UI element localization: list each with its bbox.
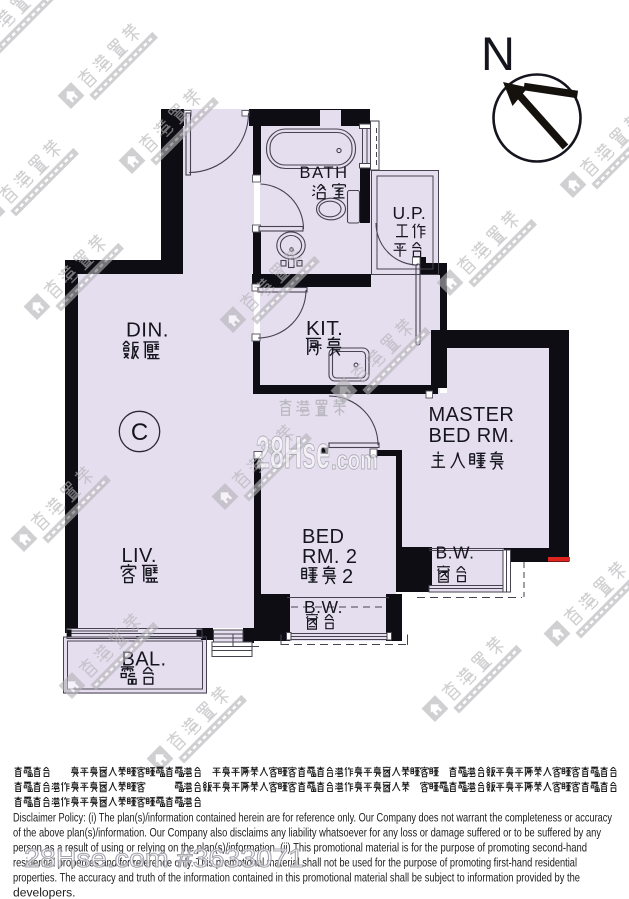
svg-text:N: N <box>481 27 515 80</box>
svg-text:RM. 2: RM. 2 <box>302 546 357 568</box>
svg-text:BED RM.: BED RM. <box>429 425 515 447</box>
svg-text:C: C <box>131 419 148 446</box>
svg-text:DIN.: DIN. <box>126 319 169 342</box>
svg-text:developers.: developers. <box>13 886 76 899</box>
svg-text:MASTER: MASTER <box>429 404 515 426</box>
svg-text:B.W.: B.W. <box>436 543 475 563</box>
svg-text:BED: BED <box>302 526 344 548</box>
svg-text:28Hse: 28Hse <box>256 427 330 478</box>
svg-text:B.W.: B.W. <box>304 597 343 617</box>
svg-text:2: 2 <box>342 566 353 588</box>
svg-text:U.P.: U.P. <box>393 203 427 223</box>
svg-text:of the above plan(s)/informati: of the above plan(s)/information. Our Co… <box>13 826 602 840</box>
svg-text:LIV.: LIV. <box>122 545 157 567</box>
svg-text:.com: .com <box>331 445 378 475</box>
svg-text:Disclaimer Policy: (i) The pla: Disclaimer Policy: (i) The plan(s)/infor… <box>13 811 613 825</box>
svg-text:28Hse.com #3633071: 28Hse.com #3633071 <box>24 843 304 873</box>
svg-text:KIT.: KIT. <box>306 317 343 340</box>
svg-text:BATH: BATH <box>300 164 349 182</box>
